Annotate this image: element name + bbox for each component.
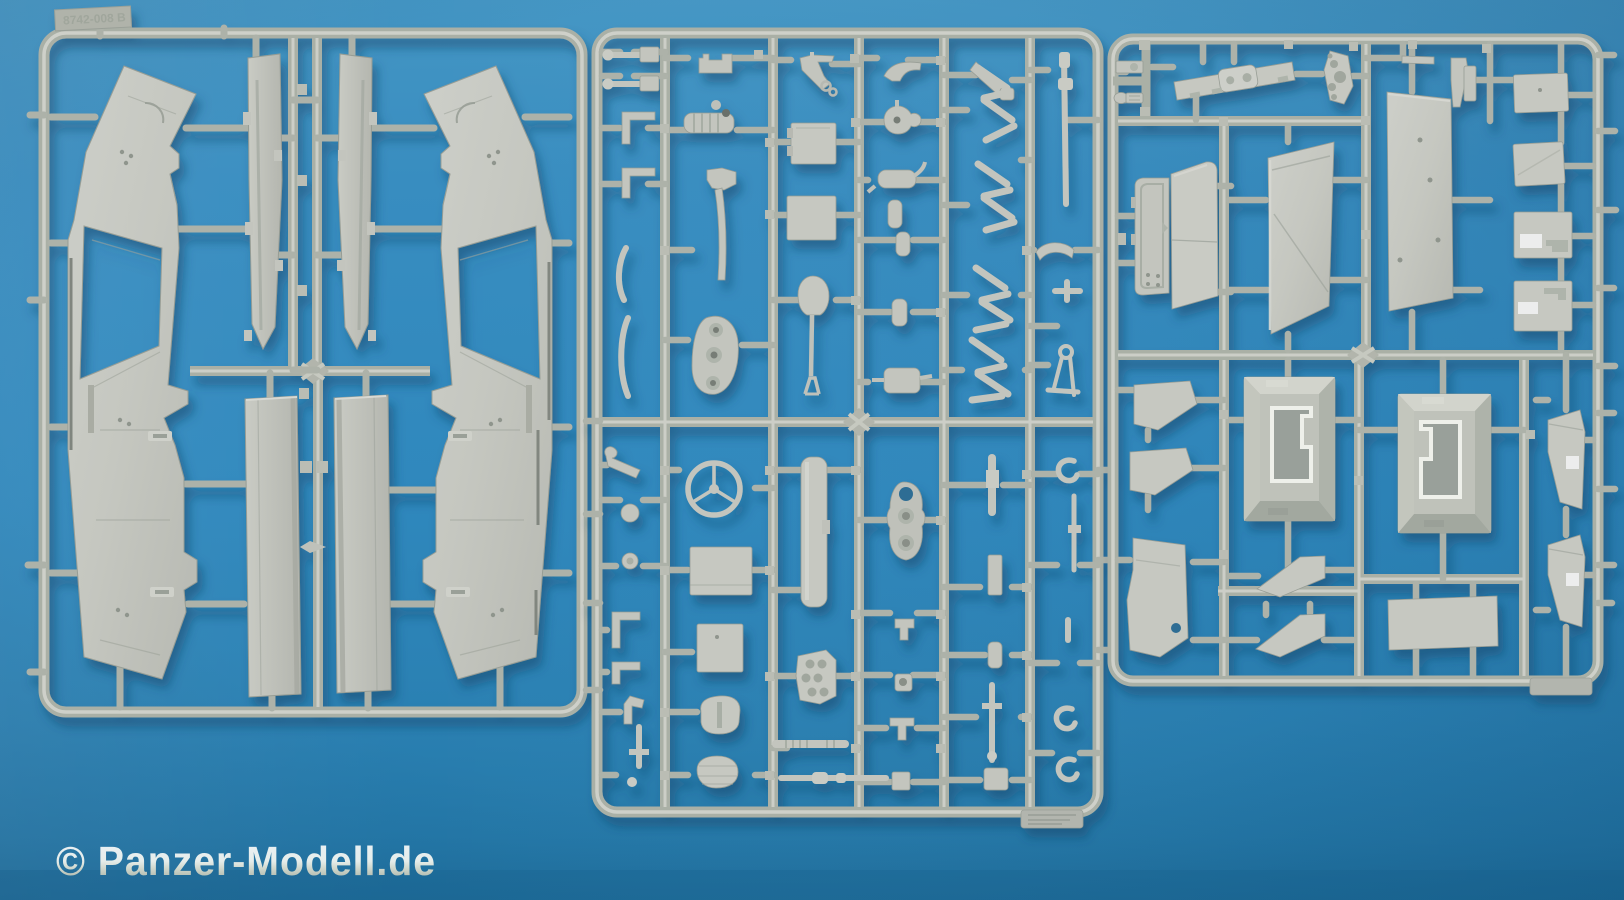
svg-text:© Panzer-Modell.de: © Panzer-Modell.de <box>56 838 436 884</box>
